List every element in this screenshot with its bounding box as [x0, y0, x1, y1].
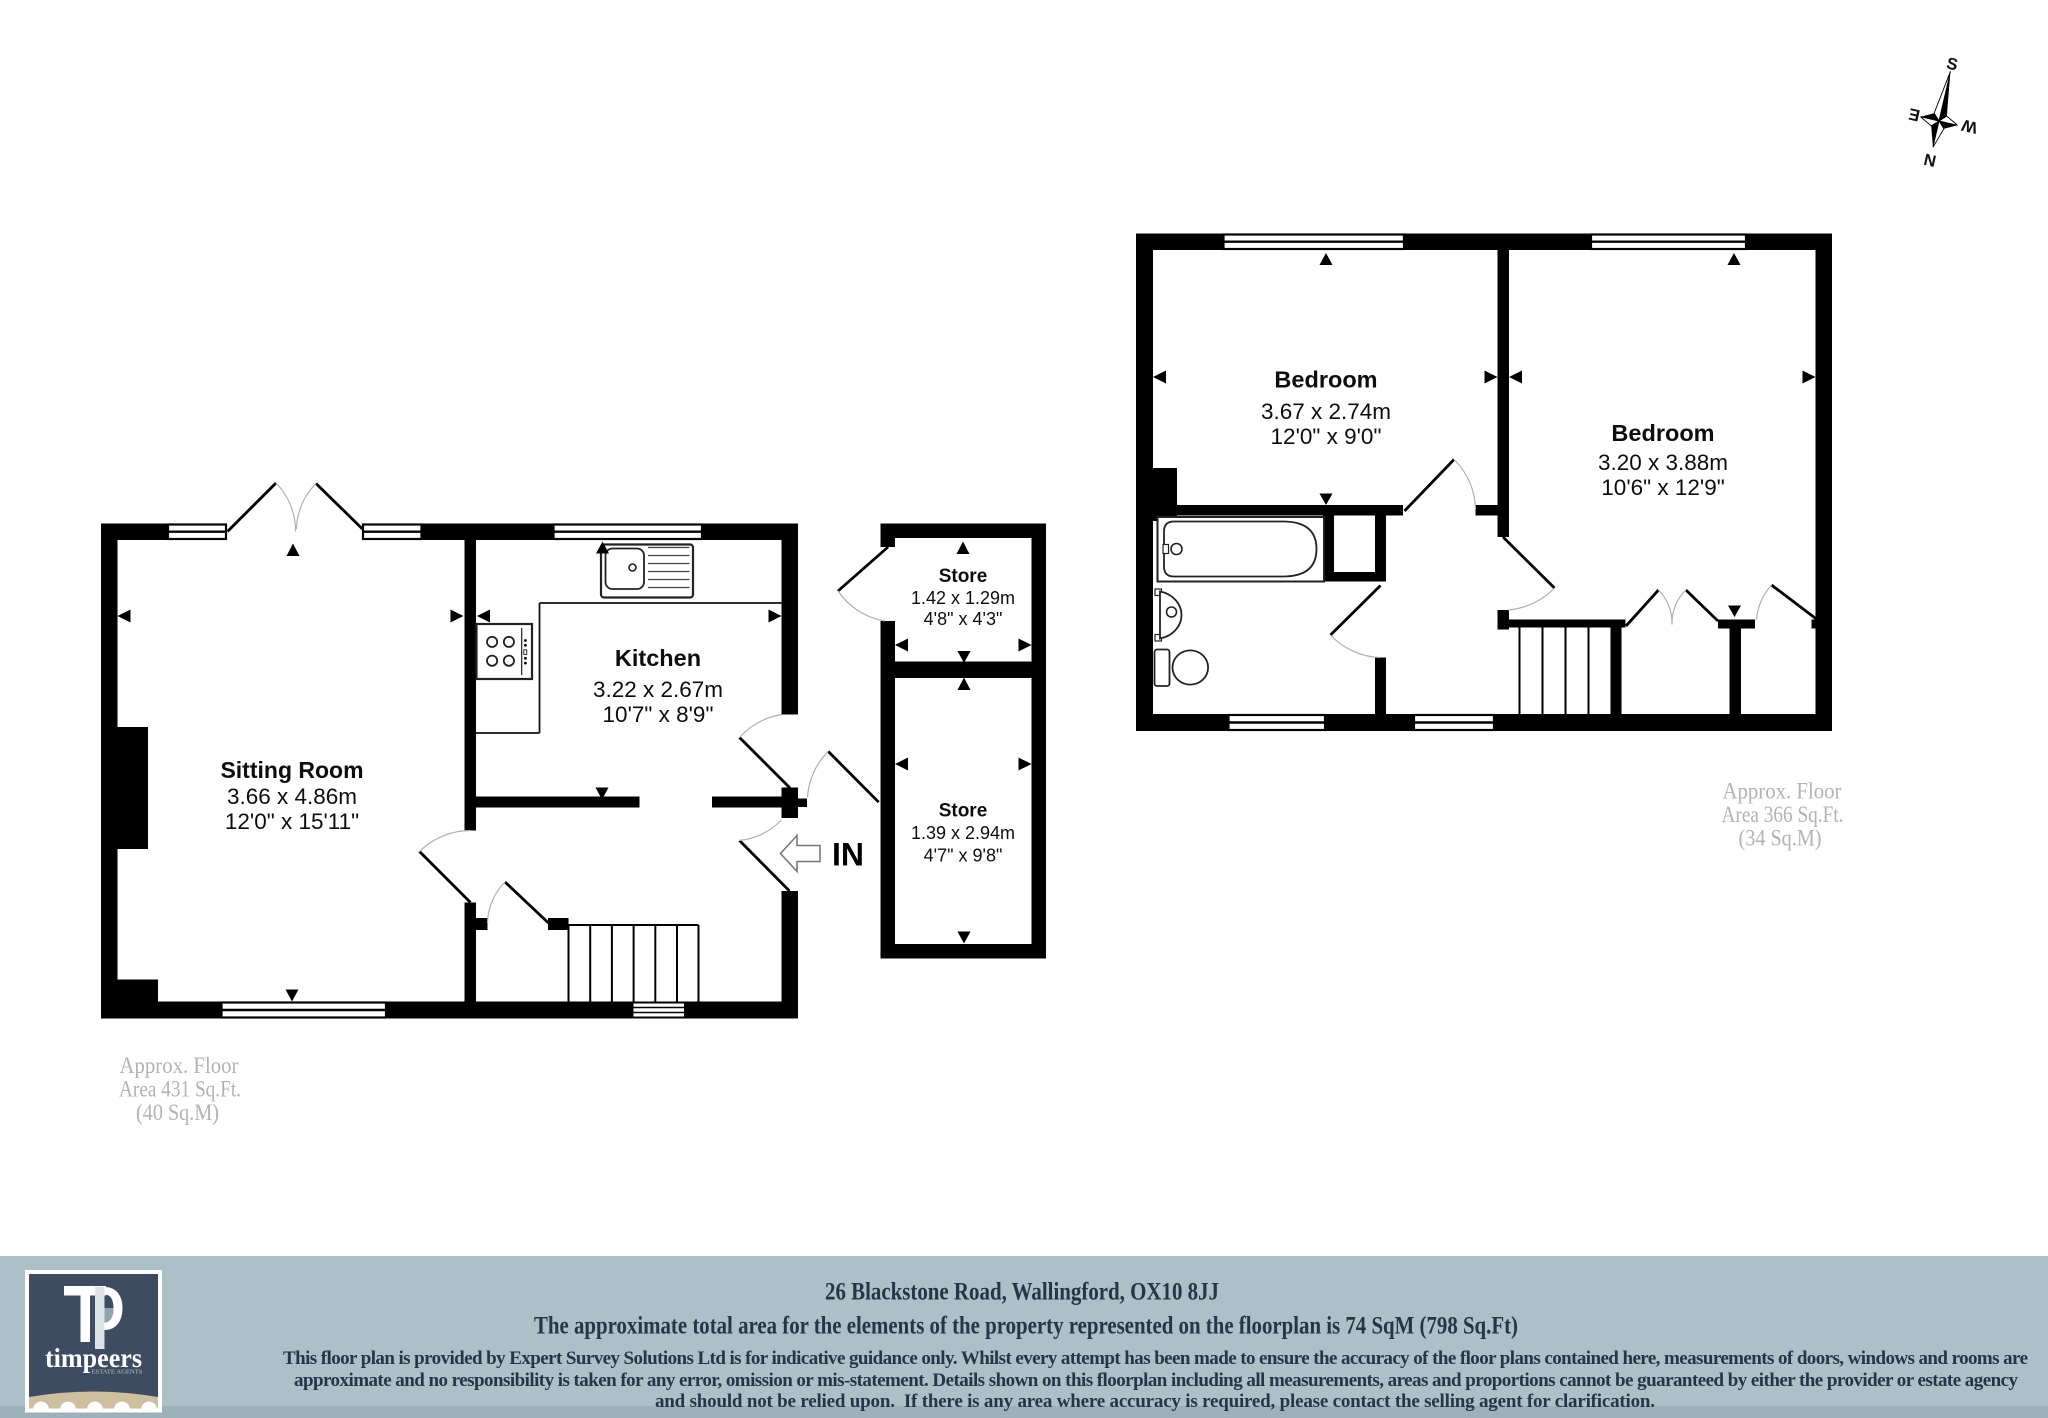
svg-text:10'6" x 12'9": 10'6" x 12'9" [1601, 475, 1724, 500]
svg-text:4'7" x 9'8": 4'7" x 9'8" [924, 846, 1003, 866]
svg-text:3.20 x 3.88m: 3.20 x 3.88m [1598, 450, 1728, 475]
svg-text:approximate and no responsibil: approximate and no responsibility is tak… [294, 1370, 2018, 1391]
svg-text:and should not be relied upon.: and should not be relied upon. If there … [655, 1391, 1655, 1412]
svg-text:Bedroom: Bedroom [1611, 420, 1714, 446]
svg-text:Store: Store [939, 566, 988, 587]
svg-text:E: E [1907, 104, 1922, 124]
svg-text:Sitting Room: Sitting Room [220, 757, 363, 783]
svg-text:IN: IN [832, 837, 864, 873]
svg-text:W: W [1960, 115, 1980, 136]
svg-text:Bedroom: Bedroom [1274, 367, 1377, 393]
svg-text:Area 431 Sq.Ft.: Area 431 Sq.Ft. [119, 1077, 241, 1102]
svg-text:1.39 x 2.94m: 1.39 x 2.94m [911, 823, 1015, 843]
svg-text:Area 366 Sq.Ft.: Area 366 Sq.Ft. [1722, 802, 1844, 827]
svg-text:This floor plan is provided by: This floor plan is provided by Expert Su… [283, 1348, 2028, 1369]
svg-text:Approx. Floor: Approx. Floor [120, 1053, 239, 1078]
svg-text:4'8" x 4'3": 4'8" x 4'3" [924, 609, 1003, 629]
svg-text:3.66 x 4.86m: 3.66 x 4.86m [227, 784, 357, 809]
svg-text:Store: Store [939, 801, 988, 822]
svg-text:The approximate total area for: The approximate total area for the eleme… [534, 1313, 1518, 1340]
svg-text:1.42 x 1.29m: 1.42 x 1.29m [911, 588, 1015, 608]
svg-text:26 Blackstone Road, Wallingfor: 26 Blackstone Road, Wallingford, OX10 8J… [825, 1279, 1219, 1306]
svg-text:S: S [1945, 54, 1960, 74]
svg-text:(34 Sq.M): (34 Sq.M) [1739, 826, 1822, 851]
svg-text:N: N [1922, 151, 1938, 171]
svg-text:3.22 x 2.67m: 3.22 x 2.67m [593, 677, 723, 702]
svg-text:timpeers: timpeers [45, 1343, 142, 1373]
svg-text:3.67 x 2.74m: 3.67 x 2.74m [1261, 399, 1391, 424]
svg-text:12'0" x 9'0": 12'0" x 9'0" [1271, 424, 1382, 449]
svg-text:12'0" x 15'11": 12'0" x 15'11" [225, 809, 359, 834]
svg-text:Kitchen: Kitchen [615, 645, 701, 671]
svg-text:ESTATE AGENTS: ESTATE AGENTS [92, 1370, 143, 1376]
svg-text:(40 Sq.M): (40 Sq.M) [136, 1100, 219, 1125]
svg-text:10'7" x 8'9": 10'7" x 8'9" [603, 702, 714, 727]
svg-text:Approx. Floor: Approx. Floor [1723, 779, 1842, 804]
